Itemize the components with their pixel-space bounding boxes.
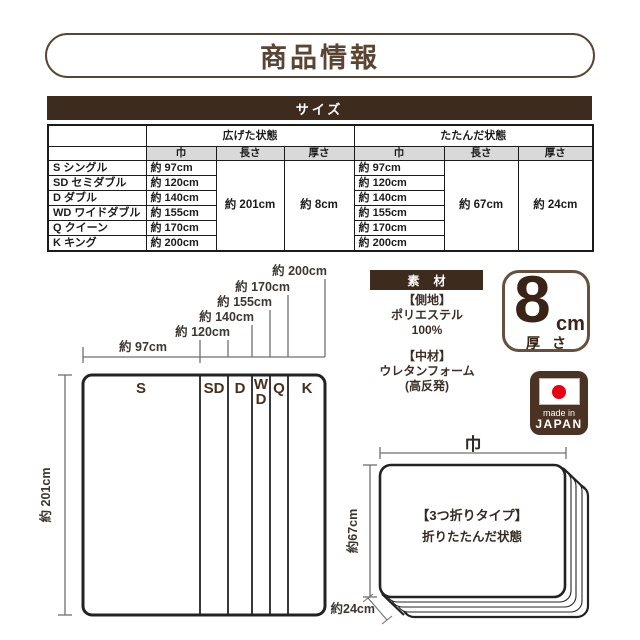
open-state-header: 広げた状態	[146, 125, 354, 147]
measure-tick	[363, 594, 373, 602]
size-name: WD ワイドダブル	[48, 206, 146, 221]
material-section-header: 素材	[370, 270, 483, 290]
page-title-box: 商品情報	[45, 33, 595, 78]
thickness-value: 8	[514, 266, 551, 332]
core-material-label: 【中材】	[352, 349, 502, 364]
folded-diagram: 巾 約67cm 約24cm 【3つ折りタイプ】 折りたたんだ状態	[330, 428, 640, 633]
spread-diagram: 約 97cm 約 120cm 約 140cm 約 155cm 約 170cm 約…	[30, 256, 350, 640]
japan-flag-icon	[539, 378, 580, 405]
size-name: S シングル	[48, 161, 146, 176]
folded-thickness-label: 約24cm	[331, 601, 375, 616]
folded-height-label: 約67cm	[345, 509, 360, 553]
table-dim-header-row: 巾 長さ 厚さ 巾 長さ 厚さ	[48, 147, 593, 161]
origin-badge: made in JAPAN	[530, 371, 588, 435]
size-name: K キング	[48, 236, 146, 252]
product-info-sheet: 商品情報 サイズ 広げた状態 たたんだ状態 巾 長さ 厚さ 巾 長さ 厚さ S …	[0, 0, 640, 640]
open-width-value: 約 120cm	[146, 176, 216, 191]
cover-material-block: 【側地】 ポリエステル 100%	[352, 293, 502, 338]
table-corner-cell	[48, 125, 146, 147]
section-label-s: S	[136, 380, 146, 397]
open-length-header: 長さ	[216, 147, 284, 161]
open-width-value: 約 140cm	[146, 191, 216, 206]
width-label-170: 約 170cm	[235, 279, 290, 294]
core-material-value: ウレタンフォーム	[352, 364, 502, 379]
open-width-value: 約 155cm	[146, 206, 216, 221]
table-row: S シングル 約 97cm 約 201cm 約 8cm 約 97cm 約 67c…	[48, 161, 593, 176]
folded-width-label: 巾	[465, 434, 482, 454]
folded-width-value: 約 97cm	[354, 161, 444, 176]
open-thickness-header: 厚さ	[284, 147, 354, 161]
width-label-120: 約 120cm	[175, 324, 230, 339]
size-section-label: サイズ	[296, 99, 344, 118]
section-label-d: D	[235, 380, 246, 397]
core-material-block: 【中材】 ウレタンフォーム (高反発)	[352, 349, 502, 394]
core-material-note: (高反発)	[352, 379, 502, 394]
section-label-wd-bottom: D	[256, 391, 267, 408]
folded-width-value: 約 155cm	[354, 206, 444, 221]
width-label-155: 約 155cm	[217, 294, 272, 309]
folded-width-value: 約 120cm	[354, 176, 444, 191]
size-name: Q クイーン	[48, 221, 146, 236]
cover-material-value: ポリエステル	[352, 308, 502, 323]
folded-width-value: 約 200cm	[354, 236, 444, 252]
table-state-header-row: 広げた状態 たたんだ状態	[48, 125, 593, 147]
width-label-97: 約 97cm	[119, 339, 167, 354]
size-name: SD セミダブル	[48, 176, 146, 191]
material-details: 【側地】 ポリエステル 100% 【中材】 ウレタンフォーム (高反発)	[352, 293, 502, 394]
folded-length-header: 長さ	[444, 147, 518, 161]
folded-width-value: 約 170cm	[354, 221, 444, 236]
measure-tick	[382, 616, 392, 624]
flag-sun-circle	[552, 385, 566, 399]
width-label-200: 約 200cm	[272, 263, 327, 278]
folded-caption-state: 折りたたんだ状態	[422, 529, 523, 544]
folded-width-value: 約 140cm	[354, 191, 444, 206]
length-label: 約 201cm	[38, 468, 53, 523]
size-section-header: サイズ	[47, 96, 592, 120]
folded-thickness-value: 約 24cm	[518, 161, 593, 252]
section-label-sd: SD	[204, 380, 225, 397]
open-width-value: 約 170cm	[146, 221, 216, 236]
size-name: D ダブル	[48, 191, 146, 206]
page-title: 商品情報	[260, 36, 380, 75]
cover-material-percent: 100%	[352, 323, 502, 338]
section-label-k: K	[302, 380, 313, 397]
size-table: 広げた状態 たたんだ状態 巾 長さ 厚さ 巾 長さ 厚さ S シングル 約 97…	[47, 124, 594, 252]
thickness-caption: 厚さ	[505, 333, 587, 353]
folded-caption-type: 【3つ折りタイプ】	[416, 508, 527, 523]
material-section-label: 素材	[393, 272, 459, 289]
open-width-value: 約 200cm	[146, 236, 216, 252]
open-length-value: 約 201cm	[216, 161, 284, 252]
thickness-badge: 8 cm 厚さ	[502, 270, 590, 352]
section-label-q: Q	[273, 380, 285, 397]
open-width-value: 約 97cm	[146, 161, 216, 176]
cover-material-label: 【側地】	[352, 293, 502, 308]
width-label-140: 約 140cm	[199, 309, 254, 324]
open-width-header: 巾	[146, 147, 216, 161]
folded-thickness-header: 厚さ	[518, 147, 593, 161]
folded-length-value: 約 67cm	[444, 161, 518, 252]
table-corner-cell	[48, 147, 146, 161]
folded-width-header: 巾	[354, 147, 444, 161]
folded-state-header: たたんだ状態	[354, 125, 593, 147]
open-thickness-value: 約 8cm	[284, 161, 354, 252]
